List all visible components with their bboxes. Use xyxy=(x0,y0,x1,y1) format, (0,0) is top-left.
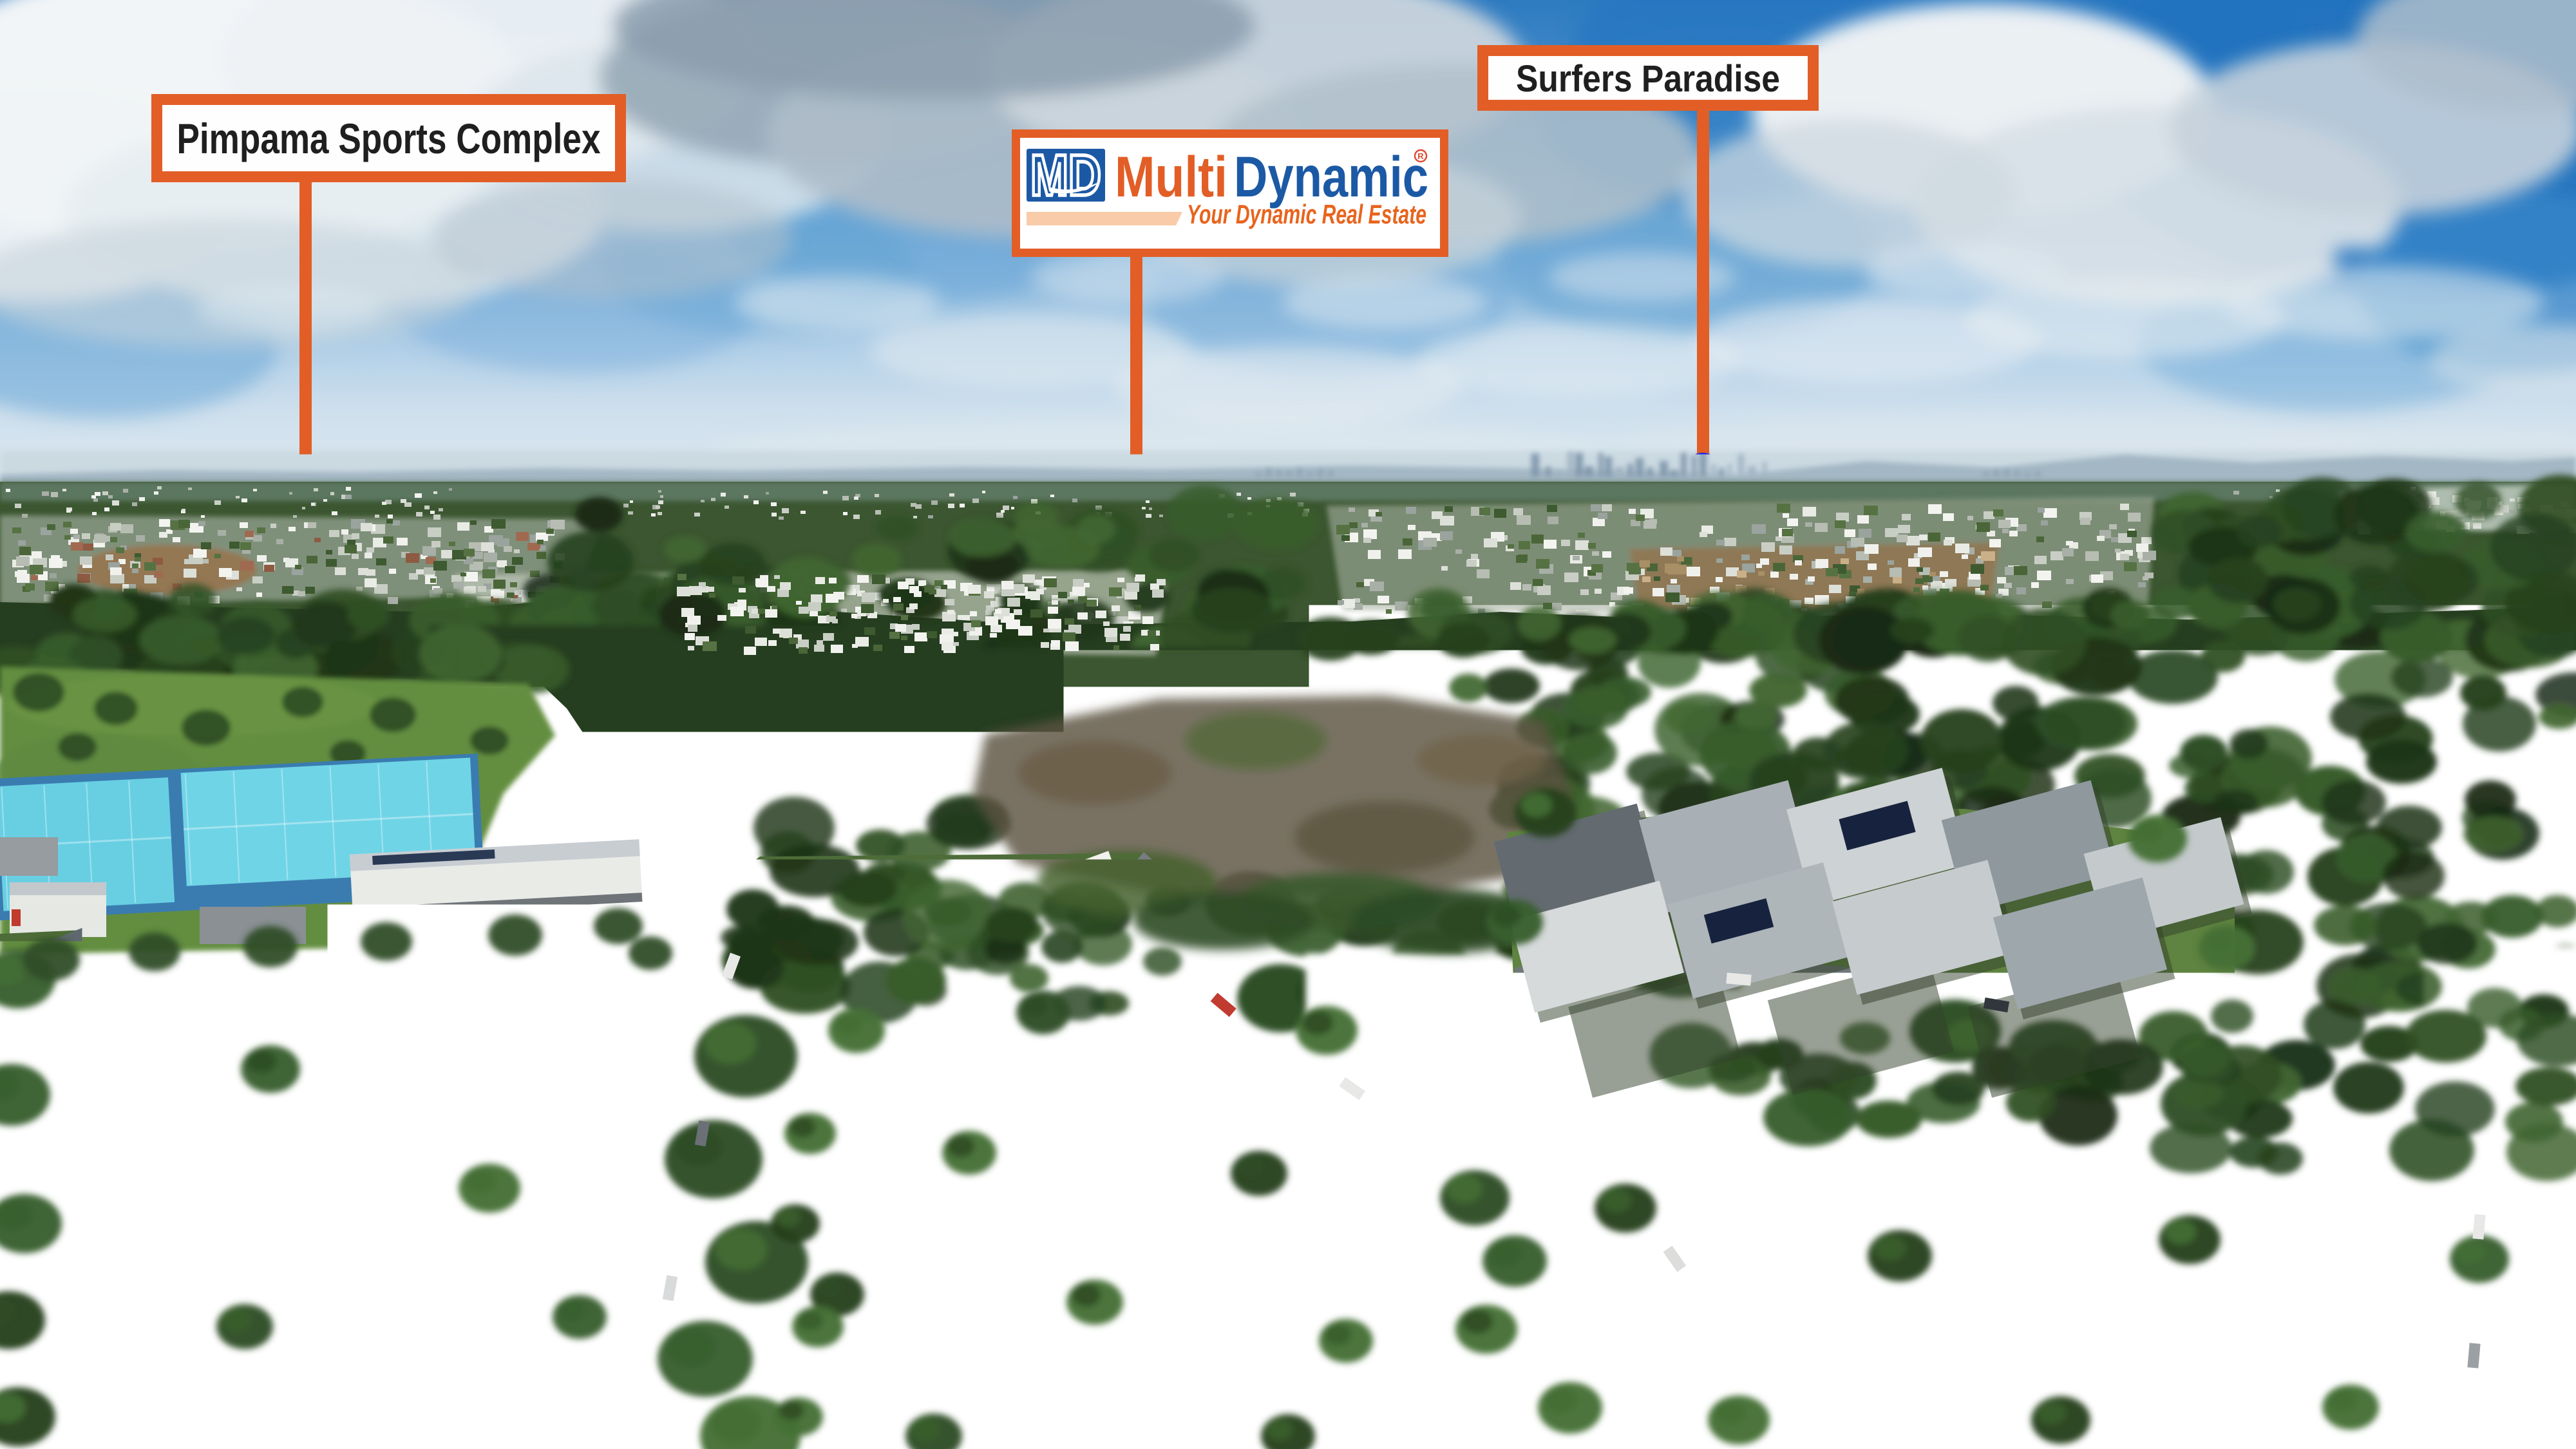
svg-text:R: R xyxy=(2552,1308,2561,1321)
svg-text:R: R xyxy=(1417,151,1424,161)
svg-text:Your Dynamic Real Estate: Your Dynamic Real Estate xyxy=(1187,199,1426,229)
svg-text:MD: MD xyxy=(1030,144,1101,208)
svg-text:Pimpama Sports Complex: Pimpama Sports Complex xyxy=(177,115,601,162)
svg-text:Your Dynamic Real Estate: Your Dynamic Real Estate xyxy=(2188,1383,2565,1424)
svg-text:MD: MD xyxy=(1944,1293,2052,1384)
svg-text:Surfers Paradise: Surfers Paradise xyxy=(1516,58,1780,100)
svg-text:Multi: Multi xyxy=(2074,1296,2237,1388)
svg-text:Dynamic: Dynamic xyxy=(2249,1296,2537,1388)
